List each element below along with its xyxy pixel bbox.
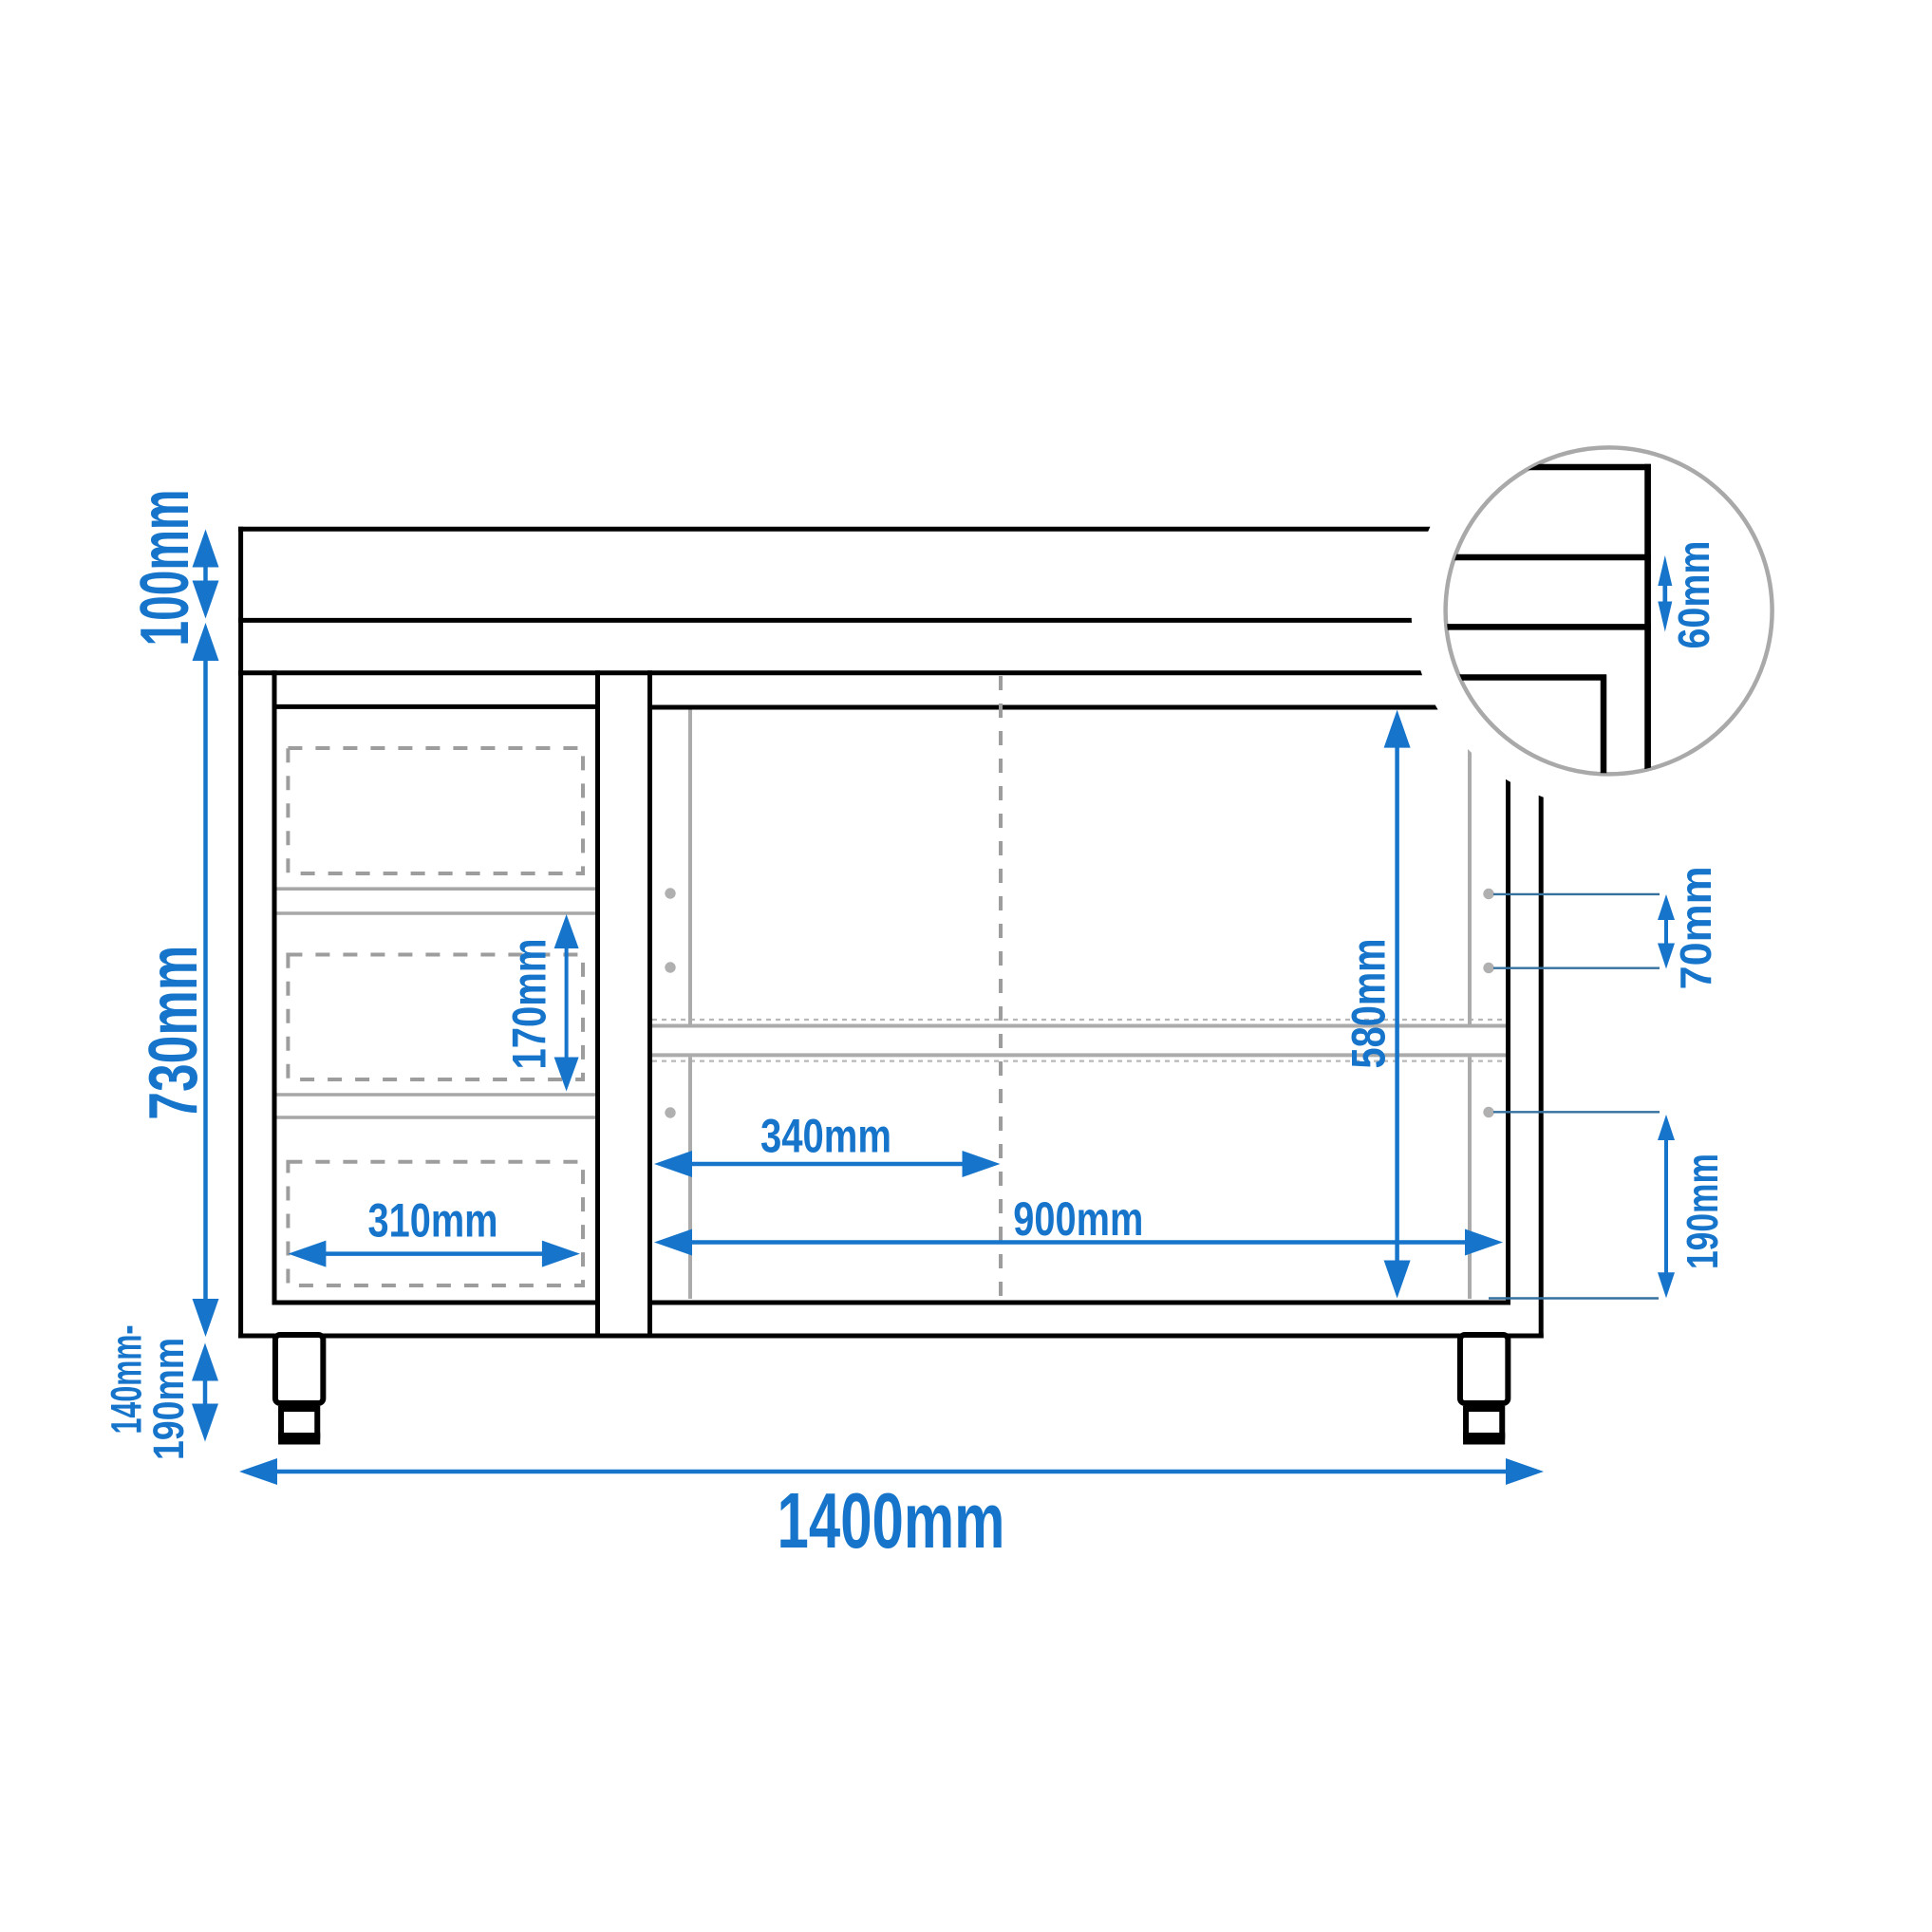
- svg-text:190mm: 190mm: [144, 1338, 193, 1460]
- svg-text:100mm: 100mm: [127, 490, 203, 647]
- svg-text:140mm-: 140mm-: [102, 1325, 150, 1435]
- svg-text:190mm: 190mm: [1678, 1154, 1727, 1269]
- svg-text:900mm: 900mm: [1013, 1192, 1143, 1246]
- svg-text:340mm: 340mm: [760, 1109, 891, 1162]
- svg-text:310mm: 310mm: [368, 1194, 498, 1247]
- svg-text:580mm: 580mm: [1342, 939, 1396, 1069]
- svg-text:1400mm: 1400mm: [778, 1476, 1005, 1565]
- svg-text:730mm: 730mm: [136, 946, 212, 1120]
- svg-text:60mm: 60mm: [1669, 541, 1718, 649]
- svg-text:70mm: 70mm: [1671, 866, 1720, 989]
- svg-text:170mm: 170mm: [503, 939, 556, 1070]
